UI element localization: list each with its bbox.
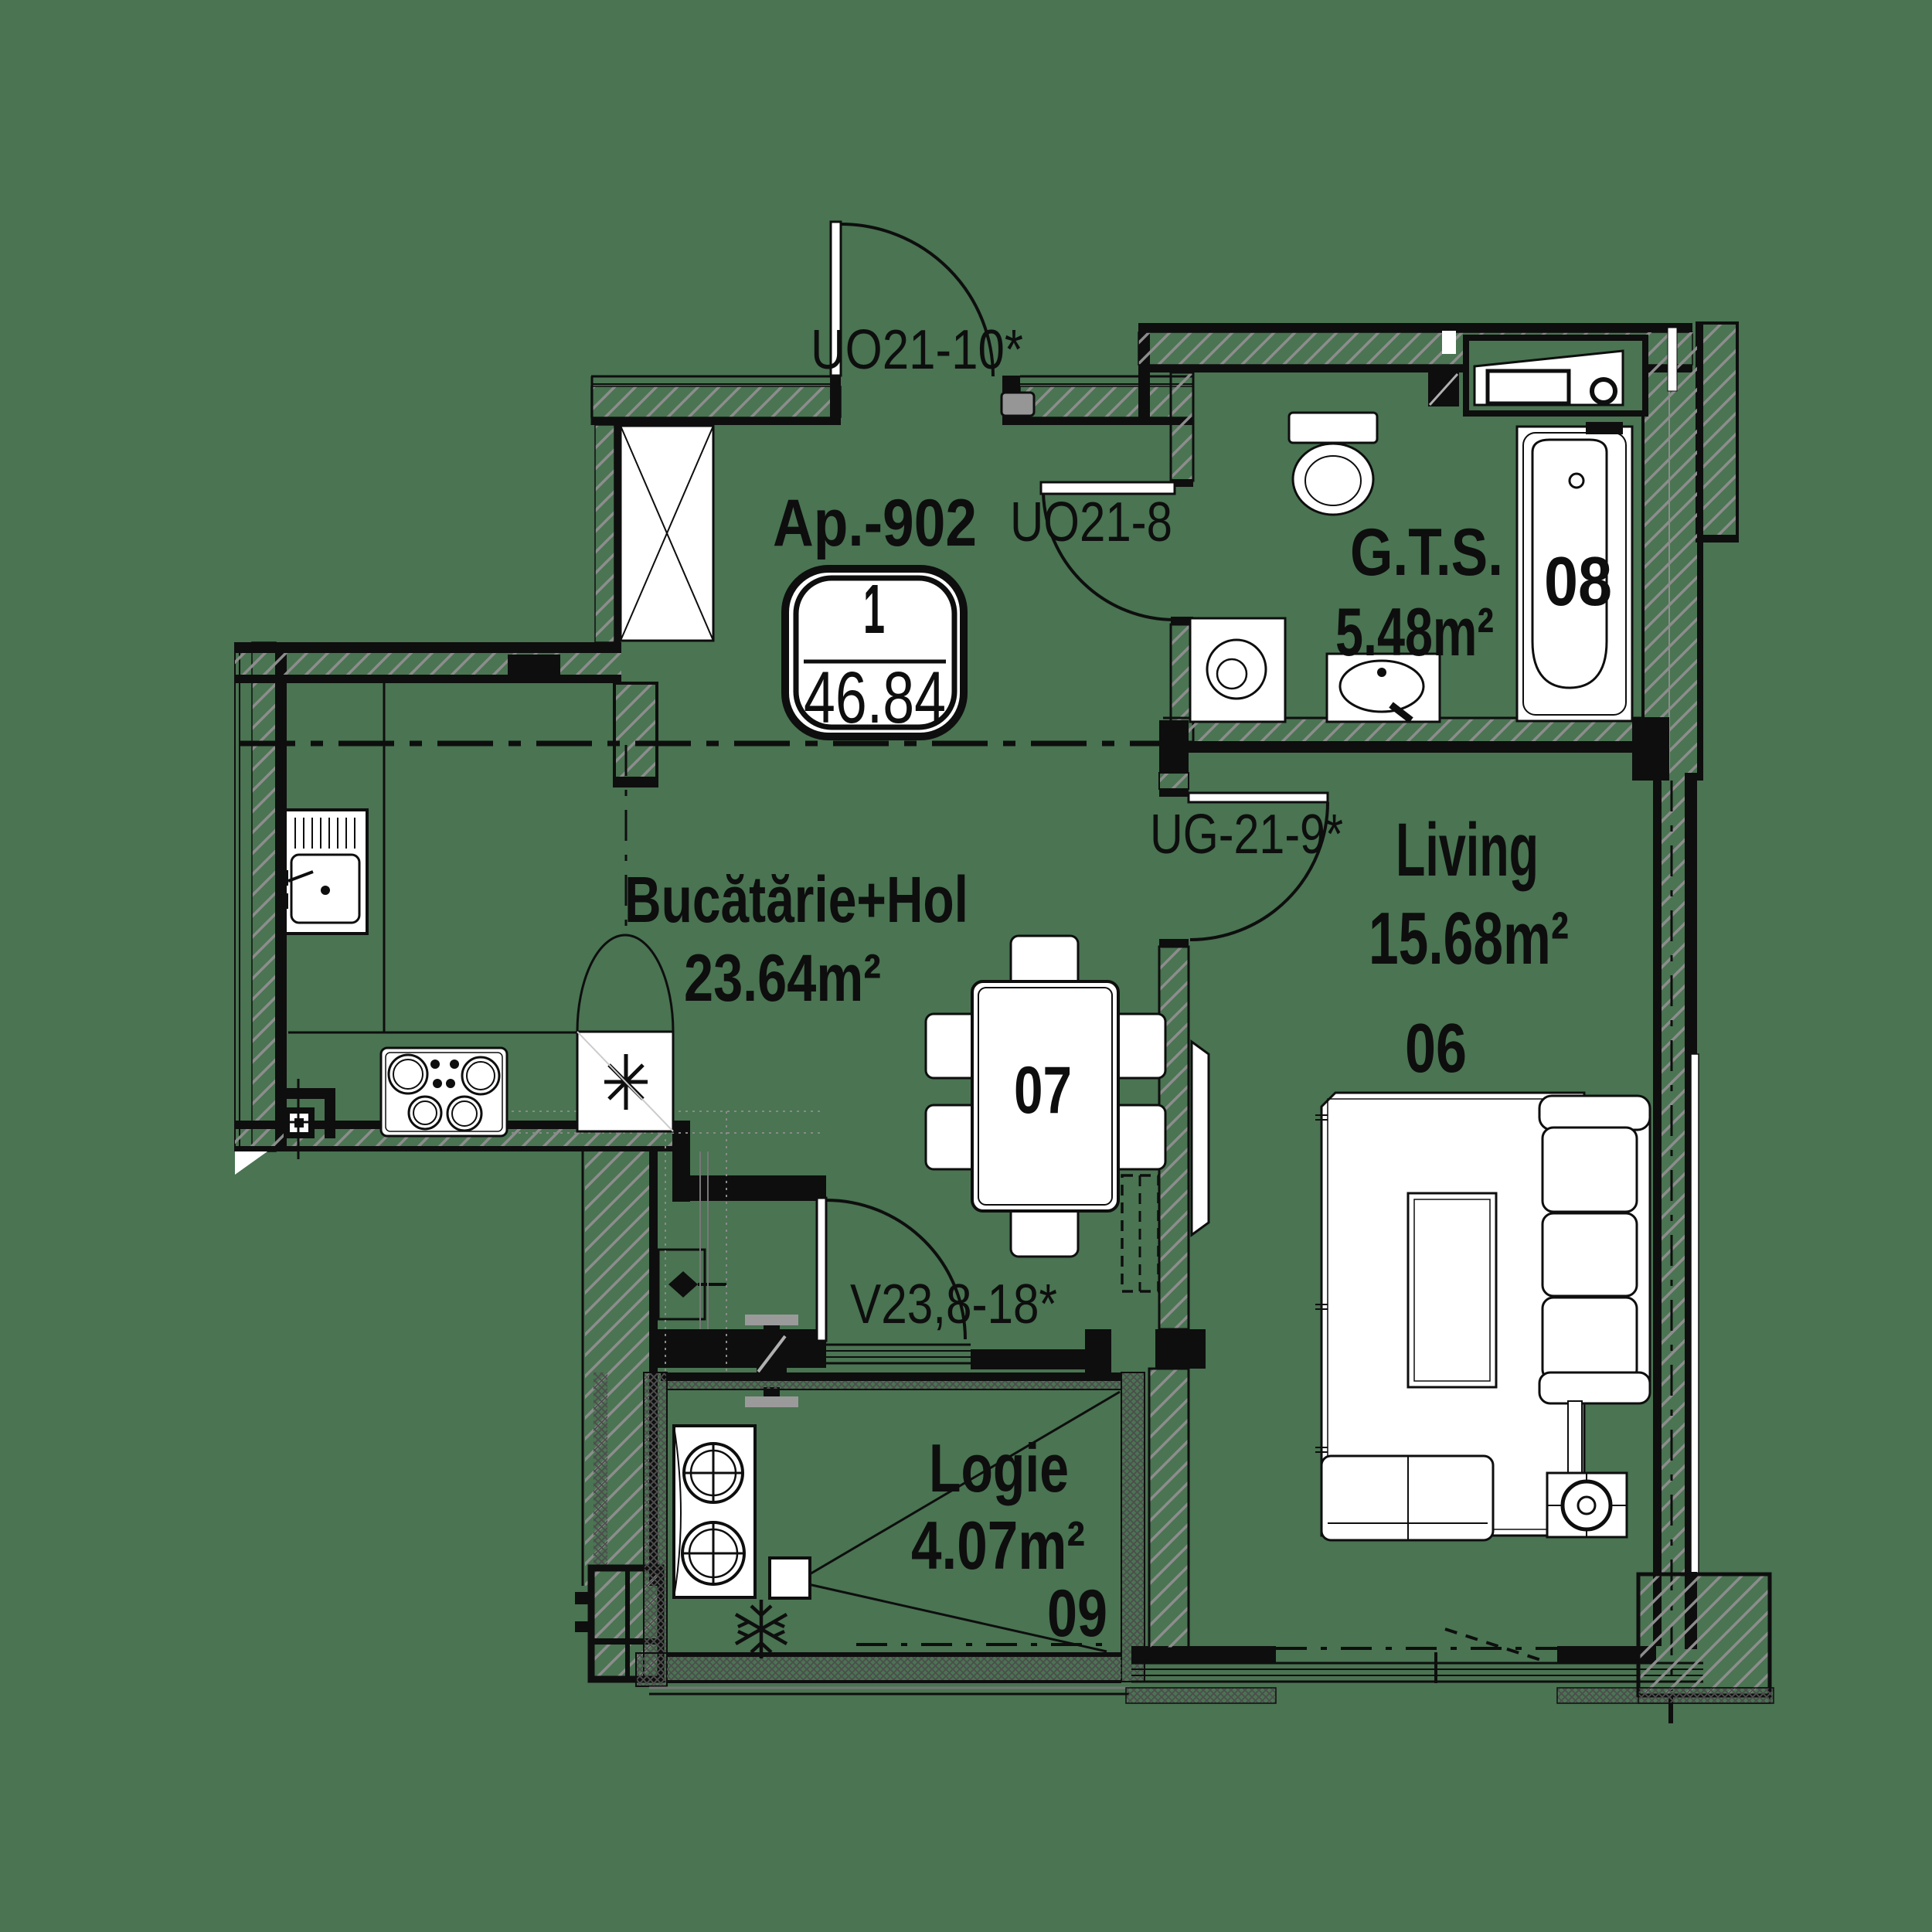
svg-text:09: 09 [1047,1577,1107,1651]
svg-text:4.07m²: 4.07m² [911,1507,1085,1583]
svg-text:06: 06 [1405,1010,1467,1087]
svg-text:23.64m²: 23.64m² [684,941,881,1015]
svg-text:08: 08 [1544,543,1612,621]
svg-text:Ap.-902: Ap.-902 [773,486,977,560]
svg-text:5.48m²: 5.48m² [1335,594,1494,670]
svg-text:G.T.S.: G.T.S. [1350,515,1503,590]
svg-text:46.84: 46.84 [804,657,946,739]
svg-text:07: 07 [1014,1053,1072,1128]
svg-text:UG-21-9*: UG-21-9* [1150,804,1343,866]
svg-text:Logie: Logie [929,1430,1069,1506]
svg-text:UO21-10*: UO21-10* [811,319,1023,381]
svg-text:15.68m²: 15.68m² [1369,897,1569,980]
svg-text:Living: Living [1396,808,1539,892]
svg-text:Bucătărie+Hol: Bucătărie+Hol [624,863,968,936]
svg-text:UO21-8: UO21-8 [1010,492,1172,553]
svg-text:V23,8-18*: V23,8-18* [850,1274,1057,1335]
svg-text:1: 1 [863,571,885,648]
